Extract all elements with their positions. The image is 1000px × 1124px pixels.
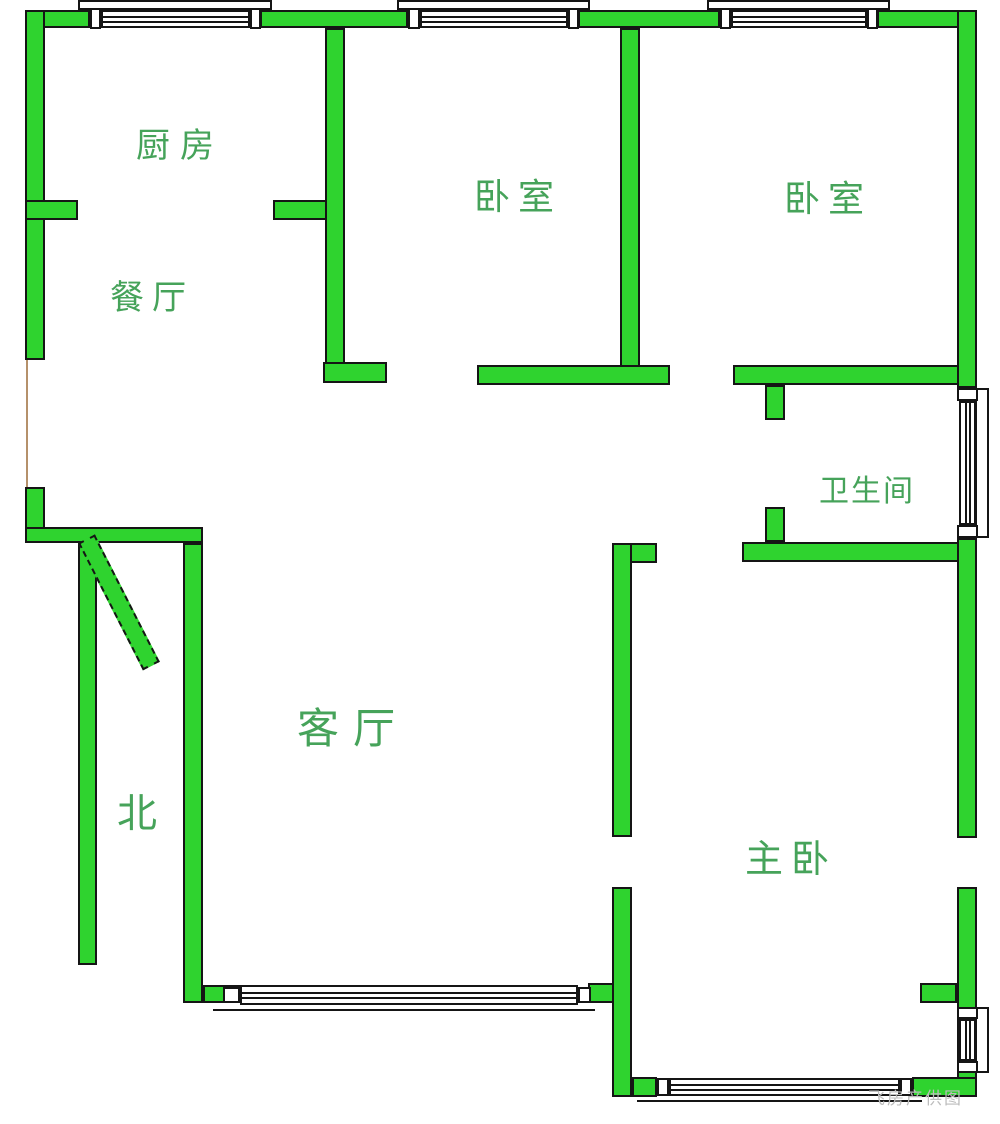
window-bathroom-cap-bottom — [957, 525, 978, 538]
wall-bathroom-stub-lower — [765, 507, 785, 542]
wall-left-upper — [25, 10, 45, 360]
wall-right-middle — [957, 538, 977, 838]
window-master-side-glass — [959, 1019, 976, 1061]
wall-master-left-lower — [612, 887, 632, 1097]
wall-bedroom1-bottom — [477, 365, 670, 385]
wall-bathroom-stub-upper — [765, 385, 785, 420]
window-bedroom1-glass — [420, 10, 568, 28]
window-kitchen-cap-left — [90, 8, 101, 29]
wall-kitchen-divider — [325, 28, 345, 364]
window-bedroom2-sill — [707, 0, 890, 10]
room-label-dining: 餐厅 — [92, 282, 212, 316]
floor-plan-canvas: 厨房 餐厅 卧室 卧室 卫生间 客厅 主卧 北 飞房产供图 — [0, 0, 1000, 1124]
window-bedroom1-sill — [397, 0, 590, 10]
room-label-living: 客厅 — [283, 709, 423, 751]
wall-kitchen-dining-stub-left — [25, 200, 78, 220]
room-label-master: 主卧 — [721, 841, 861, 879]
window-kitchen-sill — [78, 0, 272, 10]
watermark-credit: 飞房产供图 — [868, 1084, 963, 1109]
window-bedroom1-cap-right — [568, 8, 579, 29]
wall-master-right-stub — [920, 983, 957, 1003]
window-living-glass — [240, 985, 578, 1005]
room-label-bedroom1: 卧室 — [458, 179, 578, 215]
opening-edge-line-left — [26, 358, 28, 487]
window-master-bottom-glass — [669, 1078, 900, 1096]
window-kitchen-glass — [101, 10, 250, 28]
window-master-side-cap-top — [957, 1007, 978, 1019]
window-living-cap-right — [578, 987, 591, 1003]
window-master-side-cap-bottom — [957, 1061, 978, 1073]
wall-bathroom-bottom — [742, 542, 973, 562]
window-kitchen-cap-right — [250, 8, 261, 29]
window-living-cap-left — [223, 987, 240, 1003]
room-label-bedroom2: 卧室 — [768, 181, 888, 217]
window-living-sill-line — [213, 1009, 595, 1011]
wall-top-c — [578, 10, 720, 28]
window-bedroom2-cap-left — [720, 8, 731, 29]
wall-right-upper — [957, 10, 977, 388]
wall-living-window-join-right — [588, 983, 614, 1003]
wall-top-b — [260, 10, 408, 28]
window-bathroom-cap-top — [957, 388, 978, 401]
wall-master-left-upper — [612, 543, 632, 837]
wall-kitchen-divider-foot — [323, 362, 387, 383]
window-master-bottom-cap-left — [657, 1078, 669, 1096]
window-bathroom-outer-box — [975, 388, 989, 538]
window-bathroom-glass — [959, 401, 976, 525]
wall-bedroom-divider — [620, 28, 640, 385]
compass-north-label: 北 — [97, 794, 177, 834]
window-bedroom2-cap-right — [867, 8, 878, 29]
wall-entry-left — [78, 543, 97, 965]
window-bedroom1-cap-left — [408, 8, 420, 29]
window-bedroom2-glass — [731, 10, 867, 28]
wall-entry-right — [183, 543, 203, 1003]
room-label-kitchen: 厨房 — [120, 130, 240, 164]
room-label-bathroom: 卫生间 — [797, 477, 937, 507]
wall-master-bottom-left — [632, 1077, 657, 1097]
wall-bedroom2-bottom — [733, 365, 973, 385]
wall-entry-top — [25, 527, 203, 543]
